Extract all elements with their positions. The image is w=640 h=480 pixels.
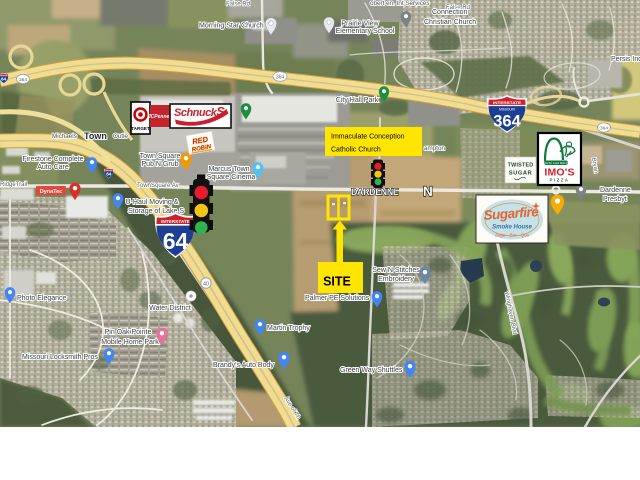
svg-text:Palmer PE Solutions: Palmer PE Solutions — [305, 295, 370, 302]
svg-text:Missouri Locksmith Pros: Missouri Locksmith Pros — [22, 354, 98, 361]
svg-text:Embroidery: Embroidery — [378, 276, 414, 283]
svg-text:Christian Church: Christian Church — [424, 19, 476, 26]
svg-text:N: N — [423, 184, 433, 199]
svg-text:City Hall Park: City Hall Park — [336, 97, 379, 104]
svg-text:Town Square: Town Square — [140, 153, 181, 160]
svg-text:TWISTED: TWISTED — [508, 163, 534, 169]
svg-text:SITE: SITE — [323, 275, 351, 289]
svg-text:Brandy's Auto Body: Brandy's Auto Body — [213, 362, 274, 369]
svg-text:Pin Oak Pointe: Pin Oak Pointe — [105, 329, 152, 336]
svg-text:JCPenney: JCPenney — [148, 114, 172, 120]
svg-text:64: 64 — [1, 77, 7, 82]
svg-text:Water District: Water District — [149, 305, 191, 312]
svg-text:Square Cinema: Square Cinema — [207, 174, 256, 181]
svg-text:DARDENNE: DARDENNE — [351, 187, 399, 197]
svg-text:64: 64 — [163, 228, 189, 254]
svg-text:64: 64 — [106, 172, 112, 177]
svg-text:False Rd: False Rd — [226, 2, 250, 8]
svg-text:RidgeTrail: RidgeTrail — [0, 182, 27, 188]
svg-text:Smoke House: Smoke House — [492, 225, 532, 231]
svg-text:U-Haul Moving &: U-Haul Moving & — [126, 199, 179, 206]
svg-text:DynaTec: DynaTec — [40, 189, 63, 195]
svg-text:Michaels: Michaels — [52, 133, 77, 140]
svg-text:obert en. Int Services: obert en. Int Services — [370, 0, 430, 7]
svg-text:Presbyt: Presbyt — [603, 196, 627, 203]
svg-text:MISSOURI: MISSOURI — [499, 108, 515, 112]
svg-text:Town: Town — [84, 131, 107, 141]
svg-text:Mobile Home Park: Mobile Home Park — [101, 339, 159, 346]
svg-text:Photo Elegance: Photo Elegance — [17, 295, 67, 302]
svg-text:TownSquare Av: TownSquare Av — [137, 183, 179, 189]
svg-text:Morning Star Church: Morning Star Church — [199, 23, 264, 30]
svg-text:Sew N Stitches: Sew N Stitches — [372, 267, 420, 274]
svg-text:SUGAR: SUGAR — [509, 171, 533, 177]
svg-text:Green Way Shuttles: Green Way Shuttles — [340, 367, 403, 374]
svg-text:364: 364 — [19, 77, 27, 83]
svg-text:Connection: Connection — [432, 9, 468, 16]
svg-text:Prairie View: Prairie View — [341, 21, 379, 28]
svg-text:Dardenne: Dardenne — [600, 187, 631, 194]
svg-text:364: 364 — [493, 113, 521, 131]
svg-text:Elementary School: Elementary School — [336, 28, 395, 35]
svg-text:Persis Ind: Persis Ind — [611, 56, 640, 63]
svg-text:Catholic Church: Catholic Church — [331, 147, 381, 154]
svg-text:Immaculate Conception: Immaculate Conception — [331, 134, 405, 141]
svg-text:Marcus Town: Marcus Town — [208, 166, 249, 173]
svg-text:Original St. Louis Style Pizza: Original St. Louis Style Pizza — [539, 161, 573, 165]
svg-text:Firestone Complete: Firestone Complete — [22, 156, 83, 163]
svg-text:ampton: ampton — [424, 145, 446, 152]
svg-text:Pub N Grub: Pub N Grub — [142, 161, 179, 168]
svg-text:TARGET: TARGET — [131, 126, 150, 131]
svg-text:364: 364 — [600, 126, 608, 132]
svg-text:364: 364 — [276, 75, 285, 81]
svg-text:Auto Care: Auto Care — [37, 164, 69, 171]
svg-text:PIZZA: PIZZA — [549, 178, 569, 183]
svg-text:40: 40 — [203, 281, 209, 287]
svg-text:Martin Trophy: Martin Trophy — [267, 325, 310, 332]
svg-text:Sage - Bar - Que: Sage - Bar - Que — [495, 233, 530, 238]
svg-text:Outle: Outle — [113, 133, 129, 140]
